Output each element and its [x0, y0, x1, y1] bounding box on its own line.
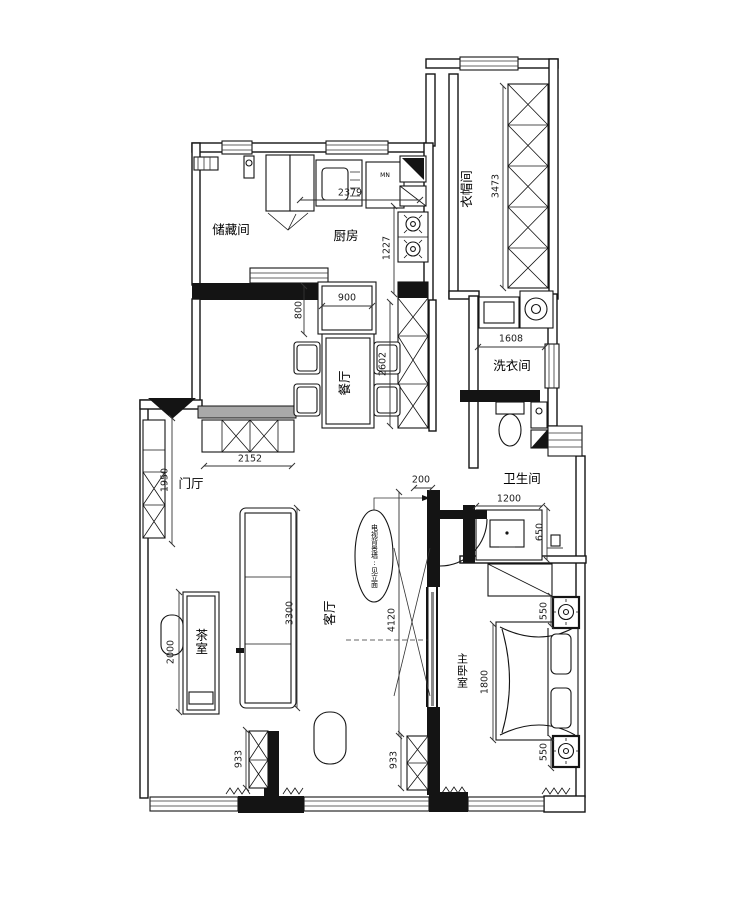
laundry-sink [479, 297, 519, 328]
dim-wall-200: 200 [412, 475, 430, 485]
dim-cloak-depth: 3473 [491, 174, 501, 198]
room-label-kitchen: 厨房 [333, 230, 358, 243]
appliance-label: MN [380, 173, 390, 179]
washing-machine [520, 291, 553, 328]
dim-kitchen-depth: 1227 [382, 236, 392, 260]
room-label-laundry: 洗衣间 [493, 360, 531, 373]
wardrobe [508, 84, 548, 288]
callout-annotation: 电视背景墙:见立面 [371, 524, 378, 588]
room-label-bathroom: 卫生间 [503, 473, 541, 486]
bottom-cabinet-left [249, 731, 268, 788]
tall-cabinet [398, 282, 428, 428]
floor-plan-drawing [0, 0, 740, 900]
closet [488, 564, 552, 596]
louver-vent [548, 426, 582, 456]
pillow [551, 634, 571, 674]
dim-laundry-width: 1608 [499, 334, 523, 344]
dim-vanity-depth: 650 [535, 523, 545, 541]
pillow [551, 688, 571, 728]
dim-nightstand-bottom: 550 [539, 743, 549, 761]
dim-living-depth: 4120 [387, 608, 397, 632]
room-label-master: 主卧室 [457, 653, 468, 689]
fridge [266, 155, 314, 230]
room-label-living: 客厅 [324, 600, 337, 625]
hall-shoe-cabinet [202, 420, 294, 452]
dim-cabinet-right: 933 [389, 751, 399, 769]
room-label-cloakroom: 衣帽间 [461, 170, 474, 208]
room-label-storage: 储藏间 [212, 224, 250, 237]
door-stop [244, 156, 254, 178]
bathroom-fixture [531, 402, 547, 448]
radiator-grille [250, 268, 328, 283]
floor-plan: 储藏间 厨房 衣帽间 洗衣间 餐厅 卫生间 门厅 客厅 茶室 主卧室 2379 … [0, 0, 740, 900]
room-label-hall: 门厅 [178, 478, 203, 491]
dim-sofa-length: 3300 [285, 601, 295, 625]
nightstand-top [553, 597, 579, 628]
room-label-dining: 餐厅 [339, 370, 352, 395]
dim-cabinet-left: 933 [234, 750, 244, 768]
nightstand-bottom [553, 736, 579, 767]
callout-bubble [355, 495, 430, 602]
dim-hall-depth: 1950 [160, 468, 170, 492]
bed [496, 622, 578, 740]
dim-cabinet-900: 900 [338, 293, 356, 303]
dim-tall-cabinet: 2602 [378, 352, 388, 376]
bottom-cabinet-right [407, 736, 428, 790]
electrical-panel [194, 157, 218, 170]
room-label-tea: 茶室 [194, 629, 207, 656]
wall-outlet [547, 535, 563, 548]
dim-cabinet-800: 800 [294, 301, 304, 319]
dining-cabinet [318, 282, 376, 334]
appliance-box [366, 162, 404, 208]
dim-nightstand-top: 550 [539, 602, 549, 620]
dim-hall-cabinet: 2152 [238, 454, 262, 464]
dim-kitchen-width: 2379 [338, 188, 362, 198]
dim-bed-width: 1800 [480, 670, 490, 694]
dim-tea-table: 2000 [166, 640, 176, 664]
ottoman [314, 712, 346, 764]
kitchen-sink [316, 160, 362, 206]
dim-vanity-width: 1200 [497, 494, 521, 504]
toilet [496, 402, 524, 446]
